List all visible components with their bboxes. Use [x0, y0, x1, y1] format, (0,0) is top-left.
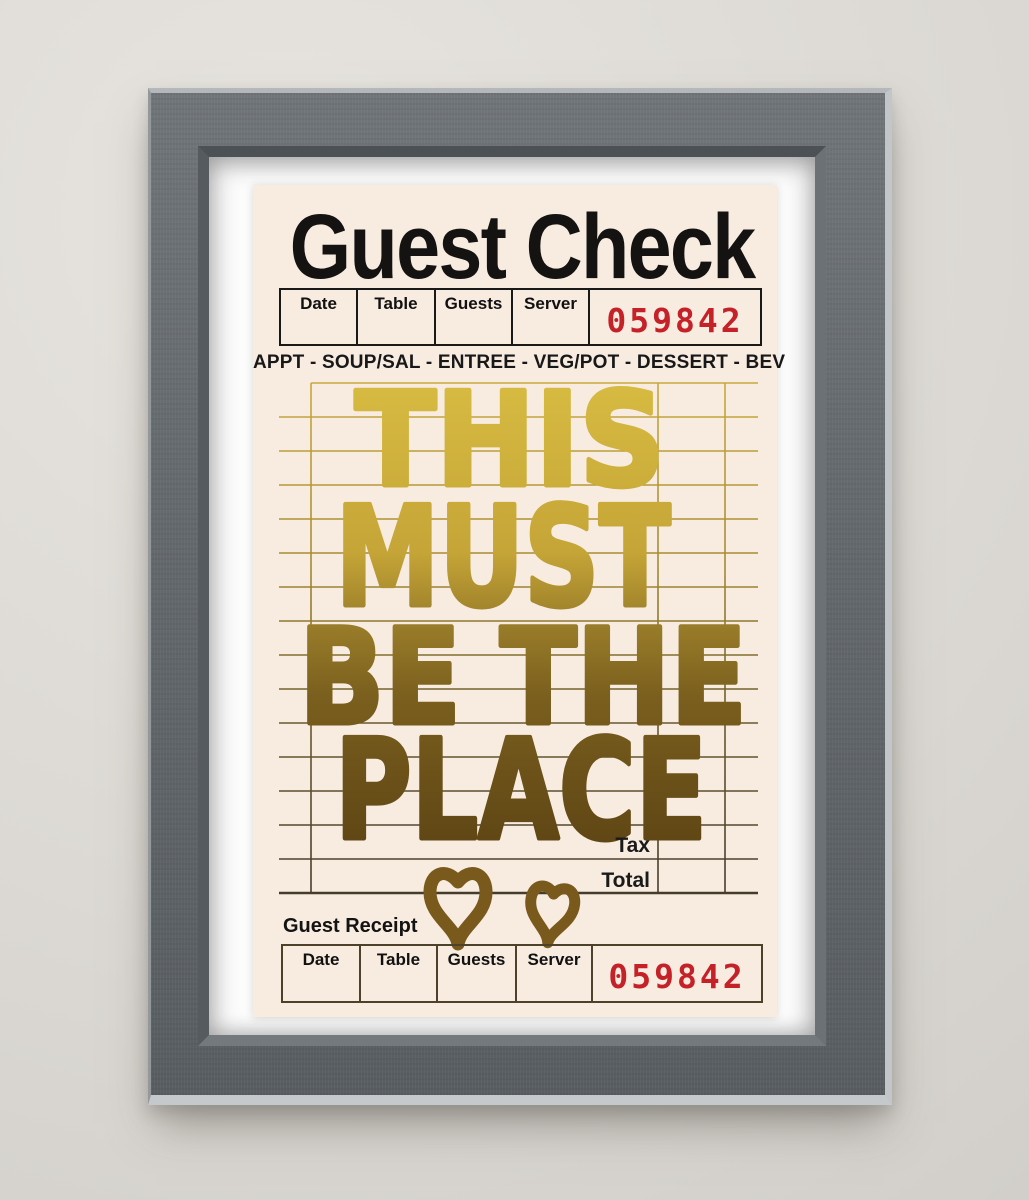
heart-small-icon [526, 885, 576, 946]
receipt-column-header-server: Server [517, 946, 593, 1001]
message-line-4: PLACE [335, 710, 707, 871]
receipt-stub-table: Date Table Guests Server 059842 [281, 944, 763, 1003]
receipt-column-header-date: Date [283, 946, 361, 1001]
picture-frame: Guest Check Date Table Guests Server 059… [148, 88, 892, 1105]
receipt-check-number: 059842 [593, 946, 761, 1001]
guest-receipt-label: Guest Receipt [283, 915, 417, 938]
ruled-grid-artwork: THIS MUST BE THE PLACE Tax Total [253, 185, 777, 1017]
tax-label: Tax [615, 834, 650, 857]
mat-board: Guest Check Date Table Guests Server 059… [209, 157, 815, 1035]
receipt-column-header-table: Table [361, 946, 438, 1001]
total-label: Total [601, 869, 650, 892]
wall: { "poster": { "title": "Guest Check", "m… [0, 0, 1029, 1200]
heart-large-icon [430, 874, 486, 944]
receipt-column-header-guests: Guests [438, 946, 517, 1001]
guest-check-poster: Guest Check Date Table Guests Server 059… [253, 185, 777, 1017]
